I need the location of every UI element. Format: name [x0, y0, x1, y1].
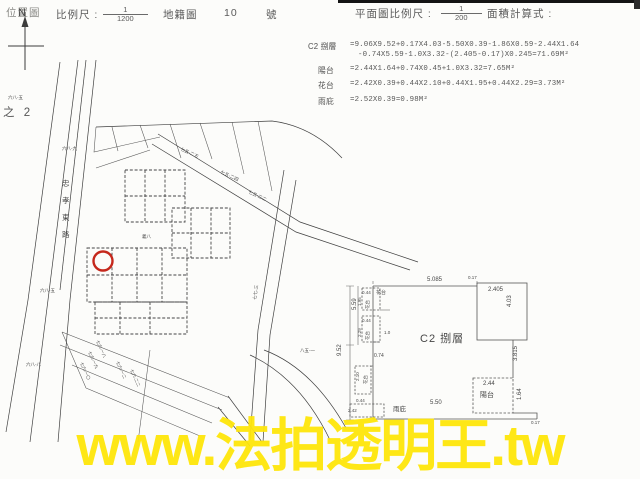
site-map-roads — [6, 60, 418, 446]
map-lot-label: 六八-八 — [26, 361, 41, 368]
plan-dimension-label: 2.10 — [355, 372, 360, 381]
plan-dimension-label: 2.405 — [488, 287, 504, 293]
plan-dimension-label: 5.50 — [430, 400, 442, 406]
map-lot-label: 六八-五 — [8, 94, 23, 101]
plan-dimension-label: 0.44 — [362, 318, 371, 323]
plan-dimension-label: 4.03 — [507, 295, 513, 307]
plan-dimension-label: 1.95 — [357, 297, 362, 306]
map-lot-label: 七五-二四 — [220, 168, 241, 182]
map-lot-label: 七五-二二 — [248, 188, 269, 202]
map-lot-label: 七五-二五 — [180, 145, 201, 159]
plan-dimension-label: 5.085 — [427, 277, 443, 283]
plan-dimension-label: 花台 — [376, 289, 386, 296]
drawing-canvas: N — [0, 0, 640, 479]
map-lot-label: 七六-一〇 — [78, 361, 92, 381]
plan-dimension-label: 2.44 — [483, 381, 495, 387]
compass-north-label: N — [18, 7, 26, 19]
plan-dimension-label: 0.74 — [374, 353, 384, 359]
plan-dimension-label: 0.44 — [362, 290, 371, 295]
plan-dimension-label: 3.815 — [513, 345, 519, 361]
plan-dimension-label: 1.64 — [517, 388, 523, 400]
plan-dimension-label: 陽台 — [480, 390, 494, 399]
plan-dimension-label: 2.29 — [357, 328, 362, 337]
road-name-label: 忠孝東路 — [62, 179, 70, 239]
plan-dimension-label: 雨庇 — [393, 404, 407, 413]
plan-dimension-label: 9.52 — [337, 344, 343, 356]
site-map-parcels — [60, 121, 272, 442]
map-lot-label: 八五-一 — [300, 348, 315, 353]
plan-dimension-label: 花台 — [362, 375, 369, 384]
floor-plan-dimension-labels: 9.525.595.0850.172.4054.033.8152.44陽台1.6… — [337, 275, 540, 425]
map-lot-label: 七六-二二 — [128, 368, 142, 388]
subject-property-marker — [94, 252, 113, 271]
map-lot-label: 六八-五 — [40, 287, 55, 294]
plan-dimension-label: 0.44 — [356, 398, 365, 403]
watermark-text: www.法拍透明王.tw — [0, 418, 640, 475]
floor-plan-unit-label: C2 捌層 — [420, 331, 464, 345]
map-lot-label: 義八 — [142, 233, 151, 239]
plan-dimension-label: 2.42 — [348, 408, 357, 413]
map-lot-label: 七七-三 — [251, 284, 259, 300]
plan-dimension-label: 花台 — [364, 300, 371, 309]
plan-dimension-label: 1.0 — [384, 330, 391, 335]
map-lot-label: 七六-一二 — [114, 360, 128, 380]
plan-dimension-label: 0.17 — [468, 275, 477, 280]
compass-icon — [8, 16, 44, 70]
scanned-court-auction-plan-page: { "doc": { "header_left": { "title": "位置… — [0, 0, 640, 479]
plan-dimension-label: 花台 — [364, 331, 371, 340]
map-lot-label: 六八-九 — [62, 145, 77, 152]
